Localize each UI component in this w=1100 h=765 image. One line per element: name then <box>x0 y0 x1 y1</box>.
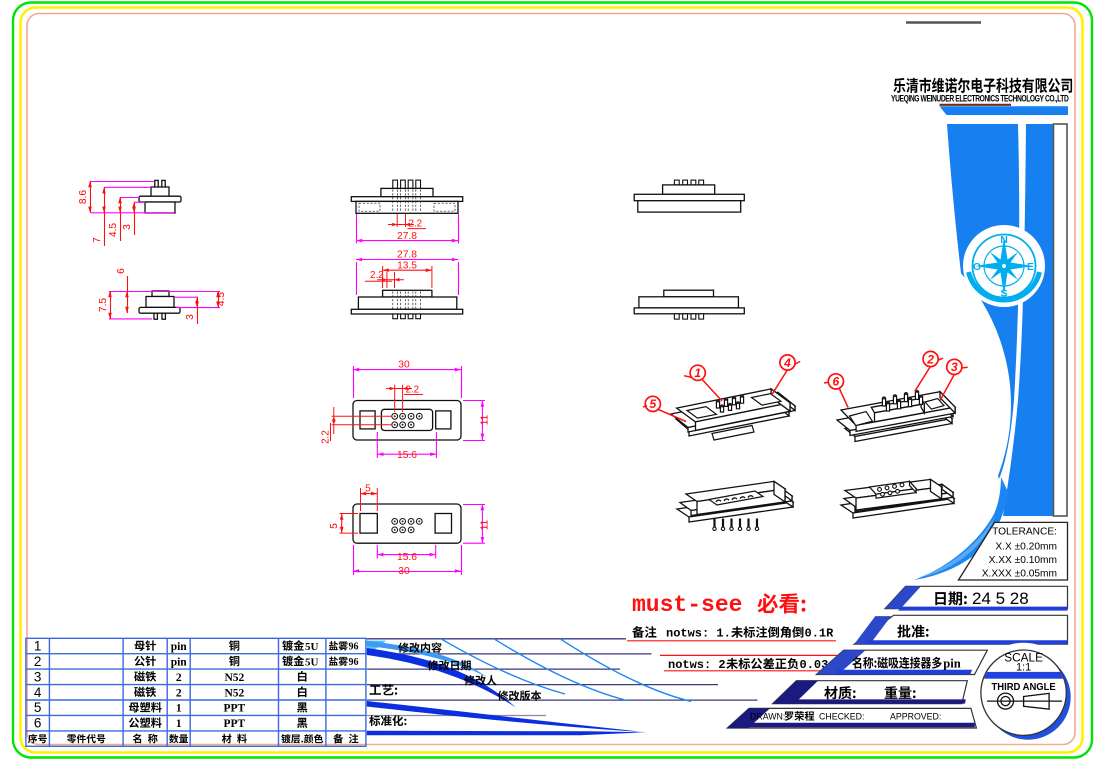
svg-text:1: 1 <box>34 639 42 654</box>
svg-text:2: 2 <box>926 352 934 366</box>
svg-text:PPT: PPT <box>223 703 245 715</box>
svg-text:TOLERANCE:: TOLERANCE: <box>992 527 1057 538</box>
svg-text:4: 4 <box>34 685 42 700</box>
svg-text:2: 2 <box>176 687 182 699</box>
svg-text:3: 3 <box>122 224 133 230</box>
svg-text:YUEQING WEINUDER ELECTRONICS T: YUEQING WEINUDER ELECTRONICS TECHNOLOGY … <box>891 93 1069 103</box>
svg-text:1:1: 1:1 <box>1016 662 1031 674</box>
svg-text:6: 6 <box>34 716 42 731</box>
svg-text:96: 96 <box>349 642 359 653</box>
svg-text:X.XXX ±0.05mm: X.XXX ±0.05mm <box>982 568 1057 579</box>
svg-text:pin: pin <box>171 656 188 668</box>
svg-text:X.XX ±0.10mm: X.XX ±0.10mm <box>989 555 1057 566</box>
svg-text:4: 4 <box>783 356 791 370</box>
svg-text:3: 3 <box>951 360 958 374</box>
svg-text:27.8: 27.8 <box>397 231 417 242</box>
svg-text:0.1R: 0.1R <box>805 627 835 641</box>
svg-text:O: O <box>973 261 981 273</box>
svg-text:N52: N52 <box>224 672 244 684</box>
svg-text:notws: 1.: notws: 1. <box>666 627 731 641</box>
svg-text:must-see: must-see <box>632 592 742 618</box>
svg-text:15.6: 15.6 <box>397 552 417 563</box>
svg-text:13.5: 13.5 <box>397 261 417 272</box>
svg-text:30: 30 <box>398 566 410 577</box>
svg-text:11: 11 <box>480 519 491 530</box>
svg-text:27.8: 27.8 <box>397 250 417 261</box>
svg-text:2.2: 2.2 <box>409 219 423 230</box>
svg-text:6: 6 <box>116 268 127 274</box>
svg-text:1: 1 <box>176 703 182 715</box>
svg-text:3: 3 <box>34 669 42 684</box>
svg-text:24 5 28: 24 5 28 <box>972 589 1029 608</box>
svg-text:5U: 5U <box>305 641 319 653</box>
svg-text:2: 2 <box>34 654 42 669</box>
svg-text:E: E <box>1027 261 1034 273</box>
svg-text:PPT: PPT <box>223 718 245 730</box>
svg-text:DRAWN:: DRAWN: <box>750 712 785 722</box>
svg-text:APPROVED:: APPROVED: <box>890 712 941 722</box>
svg-text:X.X ±0.20mm: X.X ±0.20mm <box>995 542 1057 553</box>
svg-text:3: 3 <box>185 314 196 320</box>
svg-text:7: 7 <box>92 237 103 243</box>
svg-text:5: 5 <box>649 397 656 411</box>
svg-text:N52: N52 <box>224 687 244 699</box>
svg-text:5: 5 <box>329 523 340 529</box>
svg-text:5: 5 <box>34 700 42 715</box>
svg-text:8.6: 8.6 <box>78 190 89 204</box>
svg-text:11: 11 <box>480 414 491 425</box>
svg-text:15.6: 15.6 <box>397 450 417 461</box>
svg-text:4.5: 4.5 <box>108 223 119 237</box>
svg-text:30: 30 <box>398 360 410 371</box>
svg-text:6: 6 <box>833 375 840 389</box>
svg-text:5U: 5U <box>305 656 319 668</box>
svg-text:N: N <box>1000 234 1008 246</box>
svg-text:pin: pin <box>171 641 188 653</box>
svg-text:CHECKED:: CHECKED: <box>819 712 864 722</box>
svg-text:1: 1 <box>176 718 182 730</box>
svg-text:96: 96 <box>349 657 359 668</box>
svg-text:S: S <box>1000 288 1007 300</box>
svg-text:notws: 2: notws: 2 <box>668 658 726 672</box>
svg-text:4.5: 4.5 <box>216 292 227 306</box>
svg-text:THIRD ANGLE: THIRD ANGLE <box>991 681 1056 692</box>
svg-text:2.2: 2.2 <box>370 270 384 281</box>
svg-text:pin: pin <box>943 657 961 671</box>
svg-text:2.2: 2.2 <box>406 385 420 396</box>
svg-text:2.2: 2.2 <box>321 430 332 444</box>
svg-text:1: 1 <box>694 366 701 380</box>
svg-text:7.5: 7.5 <box>98 298 109 312</box>
svg-text:2: 2 <box>176 672 182 684</box>
svg-text:5: 5 <box>365 484 371 495</box>
